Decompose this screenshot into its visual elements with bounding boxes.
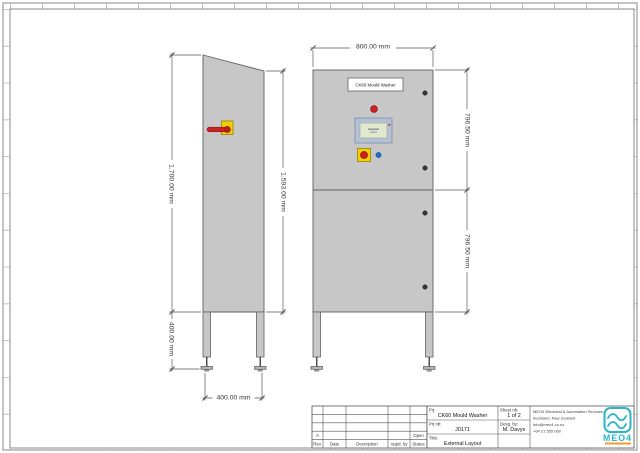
nameplate-text: CK60 Mould Washer <box>355 83 396 88</box>
desg-by-value: M. Davys <box>503 427 526 433</box>
prj-value: CK60 Mould Washer <box>438 413 488 419</box>
side-foot-front <box>201 367 213 370</box>
door-latch <box>423 166 428 171</box>
front-view: CK60 Mould Washer <box>311 70 435 372</box>
prj-nb-label: Prj nb: <box>429 422 441 427</box>
logo-wave-icon <box>605 408 631 432</box>
logo-tagline-bar <box>605 443 631 445</box>
company-phone: +64 21 555 060 <box>533 429 562 434</box>
company-logo: MEO4 <box>603 408 632 445</box>
company-email: info@meo4.co.nz <box>533 422 564 427</box>
prj-nb-value: J0171 <box>455 427 470 433</box>
front-leg-right <box>426 312 434 357</box>
hmi-panel <box>355 118 392 143</box>
front-foot-left <box>311 367 323 370</box>
start-button <box>376 152 381 157</box>
rev-header-appd: Appd. by <box>391 442 409 447</box>
hmi-screen <box>360 123 387 138</box>
dim-depth-text: 400.00 mm <box>216 395 250 402</box>
drawing-sheet: CK60 Mould Washer <box>0 0 640 453</box>
title-value: External Layout <box>444 441 482 447</box>
company-location: Auckland, New Zealand <box>533 416 575 421</box>
door-latch <box>423 211 428 216</box>
logo-text: MEO4 <box>603 433 632 443</box>
door-latch <box>423 91 428 96</box>
nameplate: CK60 Mould Washer <box>348 78 403 91</box>
dim-width-text: 800.00 mm <box>356 44 390 51</box>
revision-table: A Open Rev. Date Description Appd. by St… <box>312 406 427 448</box>
dim-front-height-text: 1,700.00 mm <box>168 164 175 204</box>
rev-current-status: Open <box>413 433 424 438</box>
dim-body-height-text: 1,593.00 mm <box>280 172 287 212</box>
sheet-nb-label: Sheet nb: <box>500 408 518 413</box>
rev-current-value: A <box>316 433 319 438</box>
dim-upper-door-text: 796.50 mm <box>464 113 471 147</box>
front-foot-right <box>424 367 436 370</box>
front-leg-left <box>313 312 321 357</box>
rev-header-status: Status <box>412 442 424 447</box>
dim-leg-height-text: 400.00 mm <box>168 322 175 356</box>
title-label: Title: <box>429 436 438 441</box>
drawing-sheet-svg: CK60 Mould Washer <box>0 0 640 453</box>
rev-header-date: Date <box>330 442 340 447</box>
dim-lower-door-text: 796.50 mm <box>464 234 471 268</box>
prj-label: Prj: <box>429 408 435 413</box>
desg-by-label: Desg. by: <box>500 422 518 427</box>
title-block: Prj: CK60 Mould Washer Sheet nb: 1 of 2 … <box>427 406 634 448</box>
side-view-body <box>203 55 264 312</box>
pilot-light <box>371 106 378 113</box>
company-name: MEO4 Electrical & Automation Services <box>533 409 603 414</box>
sheet-nb-value: 1 of 2 <box>507 413 521 419</box>
side-foot-rear <box>255 367 267 370</box>
side-leg-rear <box>257 312 265 357</box>
door-latch <box>423 285 428 290</box>
side-view <box>201 55 266 372</box>
rev-header-description: Description <box>356 442 378 447</box>
rev-header-rev: Rev. <box>313 442 322 447</box>
side-leg-front <box>203 312 211 357</box>
emergency-stop-icon <box>358 149 371 162</box>
